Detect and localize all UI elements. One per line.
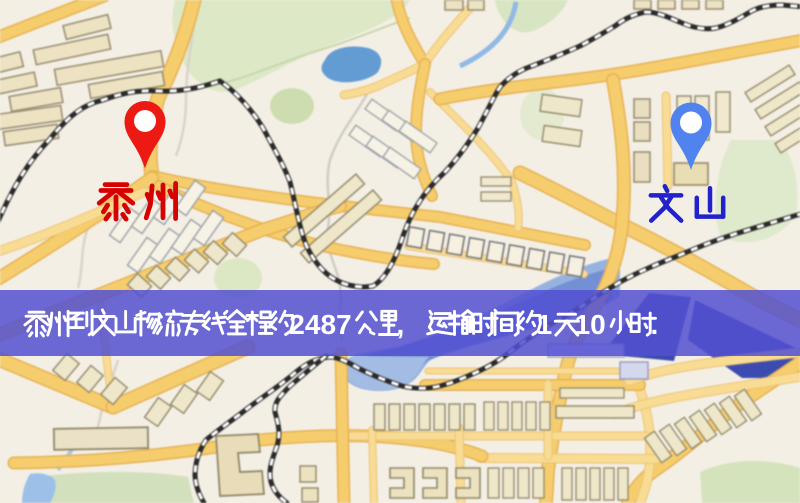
svg-text:,: , [397,309,405,340]
svg-text:2487: 2487 [289,309,351,340]
svg-text:10: 10 [575,309,606,340]
svg-text:.: . [651,309,659,340]
svg-text:1: 1 [537,309,553,340]
